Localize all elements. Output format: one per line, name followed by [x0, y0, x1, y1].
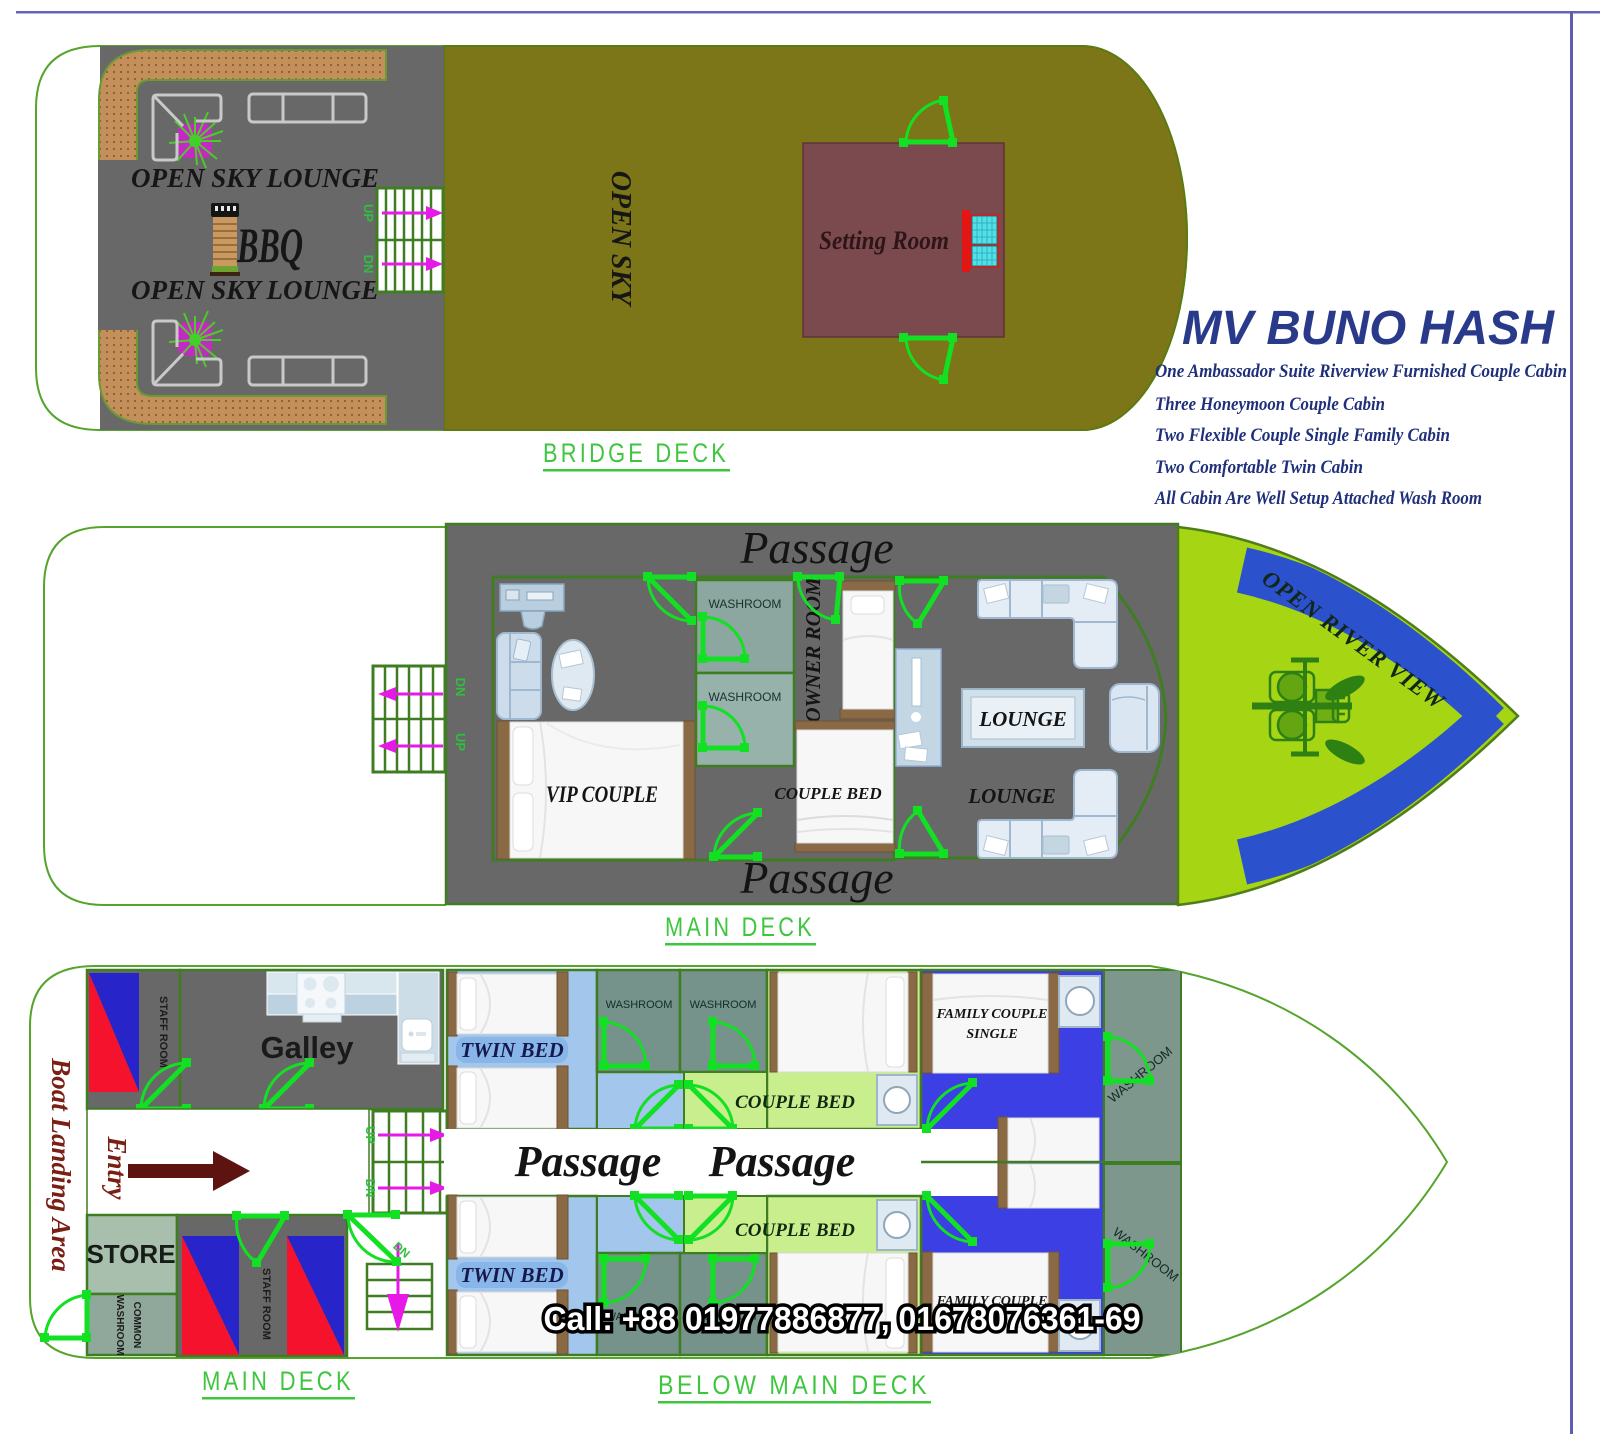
- svg-text:COMMON: COMMON: [131, 1302, 142, 1349]
- svg-text:LOUNGE: LOUNGE: [967, 784, 1056, 808]
- svg-text:COUPLE BED: COUPLE BED: [774, 784, 881, 803]
- svg-text:TWIN BED: TWIN BED: [460, 1038, 563, 1062]
- svg-text:TWIN BED: TWIN BED: [460, 1263, 563, 1287]
- svg-text:WASHROOM: WASHROOM: [709, 597, 782, 611]
- svg-text:BELOW MAIN DECK: BELOW MAIN DECK: [658, 1370, 930, 1400]
- svg-text:WASHROOM: WASHROOM: [690, 999, 757, 1011]
- svg-text:OPEN SKY LOUNGE: OPEN SKY LOUNGE: [131, 163, 379, 193]
- svg-text:Three Honeymoon Couple Cabin: Three Honeymoon Couple Cabin: [1155, 394, 1385, 415]
- svg-text:WASHROOM: WASHROOM: [114, 1294, 125, 1355]
- svg-text:STAFF ROOM: STAFF ROOM: [260, 1268, 272, 1340]
- svg-text:One Ambassador Suite Riverview: One Ambassador Suite Riverview Furnished…: [1155, 361, 1567, 382]
- svg-text:LOUNGE: LOUNGE: [978, 707, 1067, 731]
- svg-text:MV BUNO HASH: MV BUNO HASH: [1182, 302, 1555, 355]
- svg-text:UP: UP: [361, 204, 376, 222]
- svg-text:STORE: STORE: [86, 1239, 175, 1269]
- svg-text:MAIN DECK: MAIN DECK: [665, 912, 815, 942]
- svg-text:Passage: Passage: [514, 1137, 662, 1186]
- svg-text:WASHROOM: WASHROOM: [709, 690, 782, 704]
- svg-text:VIP COUPLE: VIP COUPLE: [546, 782, 658, 807]
- svg-text:MAIN DECK: MAIN DECK: [202, 1366, 354, 1396]
- svg-text:BBQ: BBQ: [236, 217, 303, 273]
- svg-text:Two Flexible Couple Single Fam: Two Flexible Couple Single Family Cabin: [1155, 425, 1450, 446]
- svg-text:Call: +88 01977886877, 0167807: Call: +88 01977886877, 01678076361-69: [544, 1300, 1141, 1337]
- svg-text:DN: DN: [363, 1179, 378, 1198]
- svg-text:FAMILY COUPLE: FAMILY COUPLE: [936, 1007, 1048, 1022]
- svg-text:Passage: Passage: [708, 1137, 856, 1186]
- svg-text:Passage: Passage: [739, 522, 893, 573]
- svg-text:COUPLE BED: COUPLE BED: [735, 1220, 855, 1241]
- svg-text:Entry: Entry: [102, 1135, 132, 1200]
- svg-text:Passage: Passage: [739, 852, 893, 903]
- svg-text:UP: UP: [453, 733, 468, 751]
- svg-text:All Cabin Are Well Setup Attac: All Cabin Are Well Setup Attached Wash R…: [1154, 488, 1482, 509]
- svg-text:STAFF ROOM: STAFF ROOM: [157, 996, 169, 1068]
- svg-text:SINGLE: SINGLE: [966, 1027, 1017, 1042]
- svg-text:OPEN SKY: OPEN SKY: [605, 171, 636, 308]
- svg-text:UP: UP: [363, 1126, 378, 1144]
- svg-text:Setting Room: Setting Room: [819, 226, 949, 255]
- svg-text:BRIDGE DECK: BRIDGE DECK: [543, 438, 729, 468]
- svg-text:WASHROOM: WASHROOM: [606, 999, 673, 1011]
- svg-text:COUPLE BED: COUPLE BED: [735, 1092, 855, 1113]
- svg-text:DN: DN: [453, 678, 468, 697]
- svg-text:Boat Landing Area: Boat Landing Area: [46, 1057, 76, 1272]
- svg-text:DN: DN: [361, 255, 376, 274]
- svg-text:OPEN SKY LOUNGE: OPEN SKY LOUNGE: [131, 275, 379, 305]
- svg-text:Two Comfortable Twin Cabin: Two Comfortable Twin Cabin: [1155, 457, 1363, 478]
